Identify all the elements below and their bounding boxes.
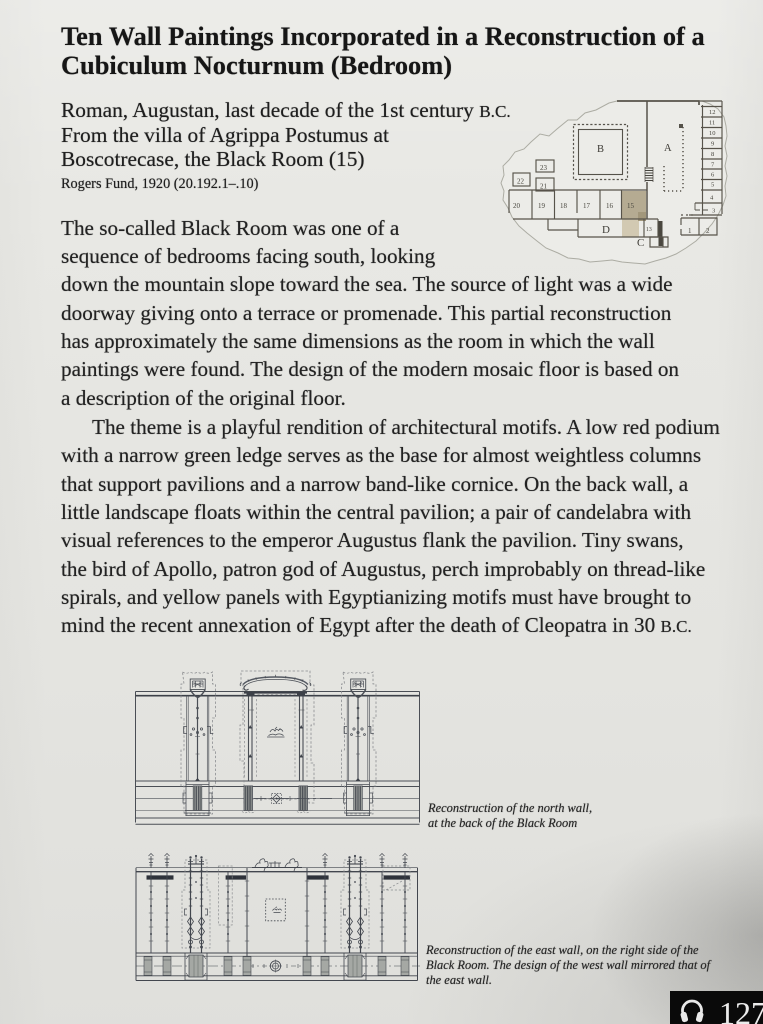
svg-text:22: 22 [517,178,525,186]
svg-text:15: 15 [627,202,635,210]
svg-text:16: 16 [606,202,614,210]
svg-text:9: 9 [711,141,714,148]
svg-text:17: 17 [583,202,591,210]
svg-text:A: A [664,143,672,154]
svg-text:11: 11 [709,119,715,126]
svg-text:1: 1 [688,227,692,235]
svg-text:3: 3 [712,207,715,214]
svg-text:C: C [637,237,644,249]
svg-text:D: D [602,224,610,236]
svg-text:10: 10 [709,130,716,137]
svg-text:23: 23 [540,164,548,172]
svg-text:12: 12 [709,109,716,116]
svg-text:2: 2 [706,227,710,235]
svg-text:8: 8 [711,151,714,158]
svg-text:21: 21 [540,183,548,191]
svg-text:B: B [597,144,604,155]
svg-text:18: 18 [560,202,568,210]
svg-text:20: 20 [513,202,521,210]
svg-text:5: 5 [711,182,714,189]
svg-text:19: 19 [538,202,546,210]
svg-text:13: 13 [646,227,652,233]
